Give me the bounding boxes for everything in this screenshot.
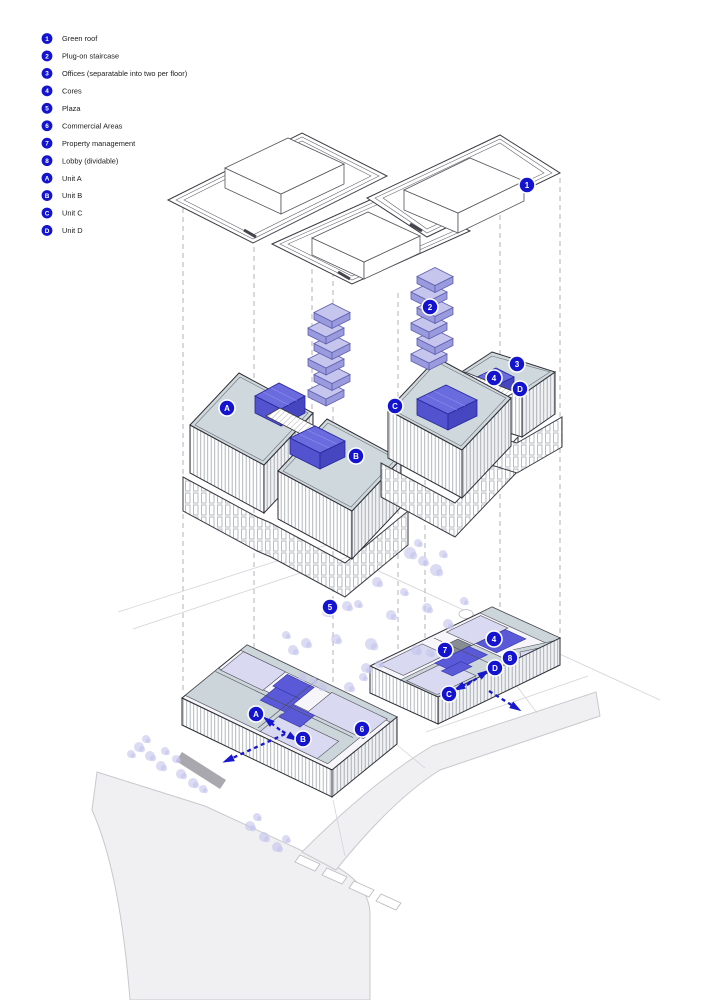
legend-item-label: Lobby (dividable) [62, 156, 118, 165]
tree [404, 547, 417, 559]
diagram-canvas: 12ABC34D5748DCAB6 1Green roof2Plug-on st… [0, 0, 707, 1000]
legend-item-7: 7Property management [42, 138, 136, 149]
badge-6-ground: 6 [354, 721, 370, 737]
legend-item-5: 5Plaza [42, 103, 82, 114]
legend-badge-id: 7 [45, 141, 49, 148]
legend-item-label: Plug-on staircase [62, 52, 119, 61]
legend-badge-id: B [45, 193, 50, 200]
badge-label: D [517, 385, 523, 394]
badge-4-offices: 4 [486, 370, 502, 386]
legend-item-B: BUnit B [42, 190, 83, 201]
legend-badge-id: C [45, 210, 50, 217]
legend-badge-id: 6 [45, 123, 49, 130]
badge-D-offices: D [512, 381, 528, 397]
legend-badge-id: 5 [45, 106, 49, 113]
legend: 1Green roof2Plug-on staircase3Offices (s… [42, 33, 188, 236]
arrow-head [222, 754, 234, 762]
badge-label: 3 [515, 360, 520, 369]
legend-item-label: Commercial Areas [62, 121, 123, 130]
road-southwest [92, 772, 370, 1000]
badge-label: 4 [492, 635, 497, 644]
tree [145, 751, 156, 761]
exploded-axonometric-diagram: 12ABC34D5748DCAB6 1Green roof2Plug-on st… [0, 0, 707, 1000]
badge-A-offices: A [219, 400, 235, 416]
badge-label: 2 [428, 303, 433, 312]
legend-badge-id: D [45, 228, 50, 235]
tree [342, 601, 353, 611]
legend-badge-id: 1 [45, 36, 49, 43]
badge-5-ground: 5 [322, 599, 338, 615]
tree [282, 631, 291, 639]
badge-label: 5 [328, 603, 333, 612]
tree [460, 597, 469, 605]
tree [253, 813, 262, 821]
legend-item-8: 8Lobby (dividable) [42, 155, 119, 166]
tree [344, 682, 355, 692]
tree [142, 735, 151, 743]
tree [372, 577, 383, 587]
badge-2-staircase: 2 [422, 299, 438, 315]
legend-item-6: 6Commercial Areas [42, 120, 123, 131]
legend-item-3: 3Offices (separatable into two per floor… [42, 68, 188, 79]
badge-8-ground: 8 [502, 650, 518, 666]
ground-floor-east-building [370, 607, 560, 724]
badge-label: C [392, 402, 398, 411]
tree [400, 588, 409, 596]
tree [188, 778, 199, 788]
plug-on-staircase-tower [411, 268, 453, 371]
office-volumes-east [381, 352, 562, 537]
badge-label: A [224, 404, 230, 413]
badge-A-ground: A [248, 706, 264, 722]
legend-item-label: Unit A [62, 174, 82, 183]
legend-item-label: Unit D [62, 226, 83, 235]
badge-label: 1 [525, 181, 530, 190]
legend-item-C: CUnit C [42, 208, 84, 219]
legend-badge-id: 4 [45, 88, 49, 95]
badge-B-ground: B [295, 731, 311, 747]
office-volumes-west [183, 373, 408, 597]
badge-7-ground: 7 [437, 642, 453, 658]
tree [301, 638, 312, 648]
legend-item-label: Green roof [62, 34, 98, 43]
badge-label: 8 [508, 654, 513, 663]
badge-D-ground: D [487, 660, 503, 676]
badge-B-offices: B [348, 448, 364, 464]
tree [361, 663, 372, 673]
badge-4-ground: 4 [486, 631, 502, 647]
roof-layer [168, 133, 560, 284]
legend-item-label: Offices (separatable into two per floor) [62, 69, 187, 78]
badge-3-offices: 3 [509, 356, 525, 372]
badge-label: C [446, 690, 452, 699]
badge-C-offices: C [387, 398, 403, 414]
tree [439, 550, 448, 558]
tree [443, 619, 454, 629]
legend-item-A: AUnit A [42, 173, 82, 184]
tree [414, 539, 423, 547]
legend-item-label: Property management [62, 139, 135, 148]
plug-on-staircase-tower [308, 304, 350, 407]
badge-label: 6 [360, 725, 365, 734]
tree [418, 556, 429, 566]
legend-badge-id: 3 [45, 71, 49, 78]
tree [156, 761, 167, 771]
tree [386, 610, 397, 620]
tree [127, 750, 136, 758]
tree [430, 564, 443, 576]
legend-badge-id: 8 [45, 158, 49, 165]
badge-label: B [300, 735, 306, 744]
tree [354, 600, 363, 608]
badge-label: 4 [492, 374, 497, 383]
badge-label: D [492, 664, 498, 673]
legend-item-label: Plaza [62, 104, 81, 113]
legend-item-D: DUnit D [42, 225, 83, 236]
badge-C-ground: C [441, 686, 457, 702]
legend-item-2: 2Plug-on staircase [42, 51, 120, 62]
legend-item-label: Unit B [62, 191, 82, 200]
tree [365, 638, 378, 650]
tree [288, 645, 299, 655]
legend-badge-id: A [45, 175, 50, 182]
legend-badge-id: 2 [45, 53, 49, 60]
legend-item-1: 1Green roof [42, 33, 99, 44]
tree [199, 785, 208, 793]
badge-1-roof: 1 [519, 177, 535, 193]
badge-label: B [353, 452, 359, 461]
tree [161, 747, 170, 755]
badge-label: A [253, 710, 259, 719]
legend-item-label: Unit C [62, 209, 83, 218]
legend-item-label: Cores [62, 87, 82, 96]
parking-strip [376, 894, 401, 910]
legend-item-4: 4Cores [42, 85, 82, 96]
tree [359, 673, 368, 681]
tree [134, 742, 145, 752]
tree [422, 603, 433, 613]
badge-label: 7 [443, 646, 448, 655]
tree [176, 769, 187, 779]
